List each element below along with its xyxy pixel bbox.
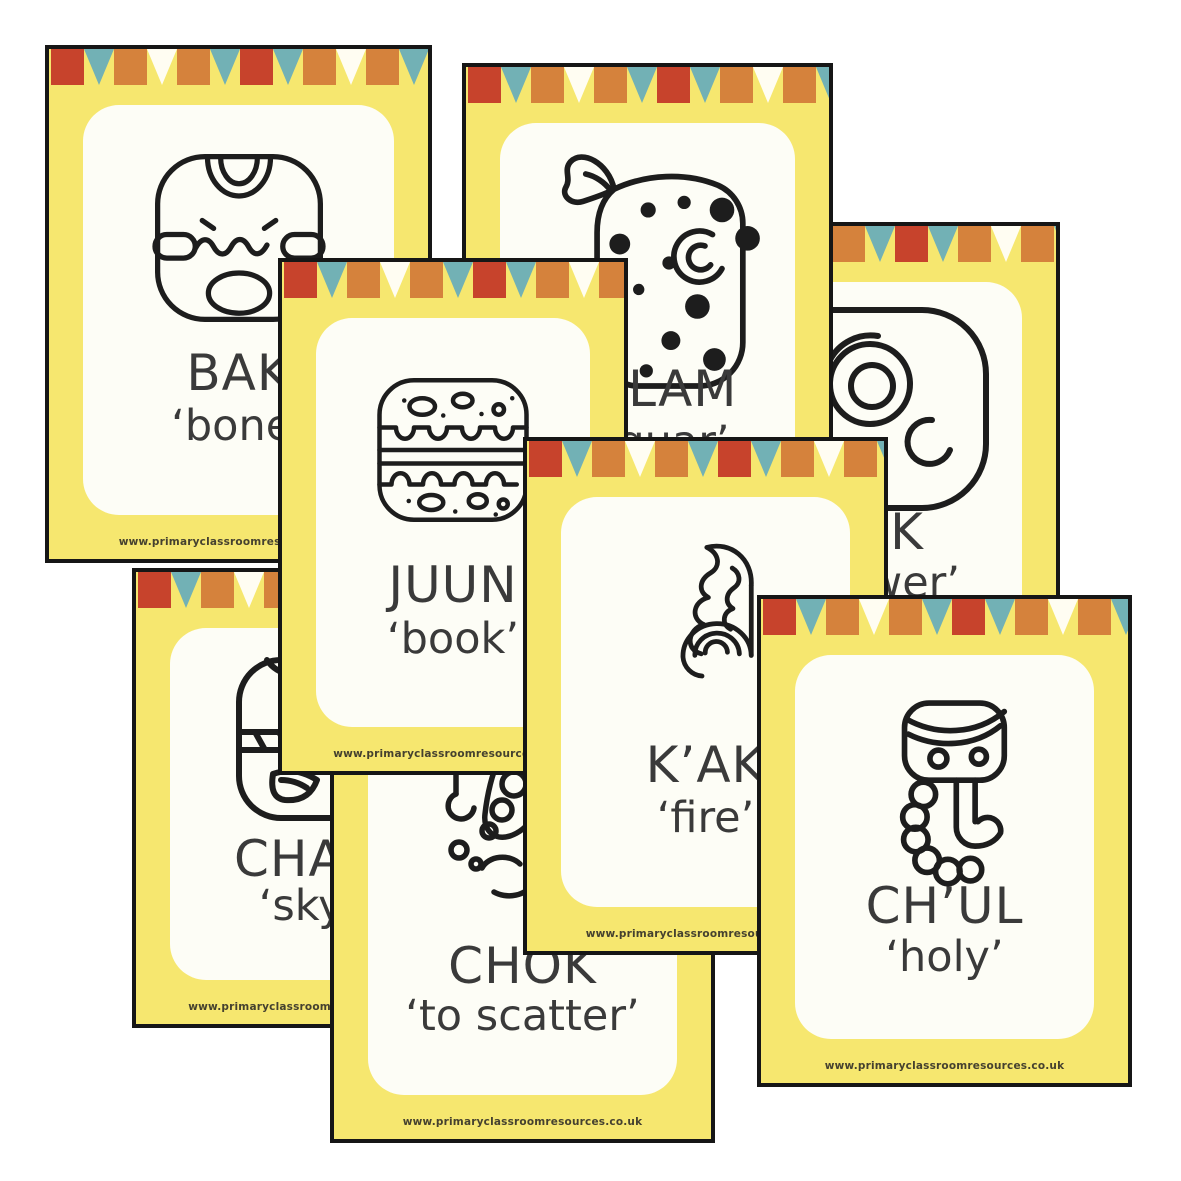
orange-square-flag [889,599,922,635]
white-triangle-flag [569,262,599,298]
teal-triangle-flag [688,441,718,477]
fire-flame-glyph [638,515,773,745]
red-square-flag [138,572,171,608]
teal-triangle-flag [816,67,829,103]
holy-drops-glyph [865,695,1025,905]
codex-book-glyph [373,375,533,525]
orange-square-flag [958,226,991,262]
teal-triangle-flag [922,599,952,635]
teal-triangle-flag [317,262,347,298]
flashcards-stage: NIK ‘flower’ www.primaryclassroomresourc… [0,0,1181,1181]
red-square-flag [895,226,928,262]
orange-square-flag [114,49,147,85]
orange-square-flag [592,441,625,477]
bunting-strip [284,262,624,302]
teal-triangle-flag [1054,226,1056,262]
holy-drops-glyph [865,695,1025,905]
orange-square-flag [347,262,380,298]
orange-square-flag [599,262,624,298]
teal-triangle-flag [501,67,531,103]
teal-triangle-flag [1111,599,1128,635]
teal-triangle-flag [562,441,592,477]
red-square-flag [51,49,84,85]
white-triangle-flag [625,441,655,477]
orange-square-flag [783,67,816,103]
footer-url: www.primaryclassroomresources.co.uk [334,1116,711,1128]
teal-triangle-flag [399,49,428,85]
orange-square-flag [531,67,564,103]
orange-square-flag [303,49,336,85]
teal-triangle-flag [877,441,884,477]
teal-triangle-flag [690,67,720,103]
white-triangle-flag [564,67,594,103]
word-meaning: ‘holy’ [761,932,1128,982]
mayan-word: CH’UL [761,877,1128,935]
orange-square-flag [366,49,399,85]
orange-square-flag [781,441,814,477]
teal-triangle-flag [171,572,201,608]
red-square-flag [240,49,273,85]
orange-square-flag [826,599,859,635]
footer-url: www.primaryclassroomresources.co.uk [761,1060,1128,1072]
teal-triangle-flag [273,49,303,85]
bunting-strip [763,599,1128,639]
bunting-strip [51,49,428,89]
orange-square-flag [177,49,210,85]
red-square-flag [657,67,690,103]
red-square-flag [473,262,506,298]
red-square-flag [284,262,317,298]
teal-triangle-flag [928,226,958,262]
orange-square-flag [201,572,234,608]
orange-square-flag [720,67,753,103]
white-triangle-flag [147,49,177,85]
teal-triangle-flag [210,49,240,85]
white-triangle-flag [991,226,1021,262]
orange-square-flag [1021,226,1054,262]
teal-triangle-flag [506,262,536,298]
white-triangle-flag [380,262,410,298]
teal-triangle-flag [627,67,657,103]
red-square-flag [763,599,796,635]
red-square-flag [952,599,985,635]
white-triangle-flag [753,67,783,103]
orange-square-flag [410,262,443,298]
white-triangle-flag [336,49,366,85]
codex-book-glyph [373,375,533,525]
white-triangle-flag [234,572,264,608]
word-meaning: ‘to scatter’ [334,991,711,1041]
orange-square-flag [536,262,569,298]
bunting-strip [529,441,884,481]
red-square-flag [468,67,501,103]
white-triangle-flag [859,599,889,635]
teal-triangle-flag [985,599,1015,635]
orange-square-flag [594,67,627,103]
orange-square-flag [655,441,688,477]
flashcard-chul: CH’UL ‘holy’ www.primaryclassroomresourc… [757,595,1132,1087]
red-square-flag [718,441,751,477]
teal-triangle-flag [751,441,781,477]
fire-flame-glyph [638,515,773,745]
teal-triangle-flag [796,599,826,635]
orange-square-flag [1078,599,1111,635]
red-square-flag [529,441,562,477]
orange-square-flag [844,441,877,477]
white-triangle-flag [1048,599,1078,635]
teal-triangle-flag [84,49,114,85]
orange-square-flag [1015,599,1048,635]
teal-triangle-flag [443,262,473,298]
orange-square-flag [832,226,865,262]
teal-triangle-flag [865,226,895,262]
white-triangle-flag [814,441,844,477]
bunting-strip [468,67,829,107]
